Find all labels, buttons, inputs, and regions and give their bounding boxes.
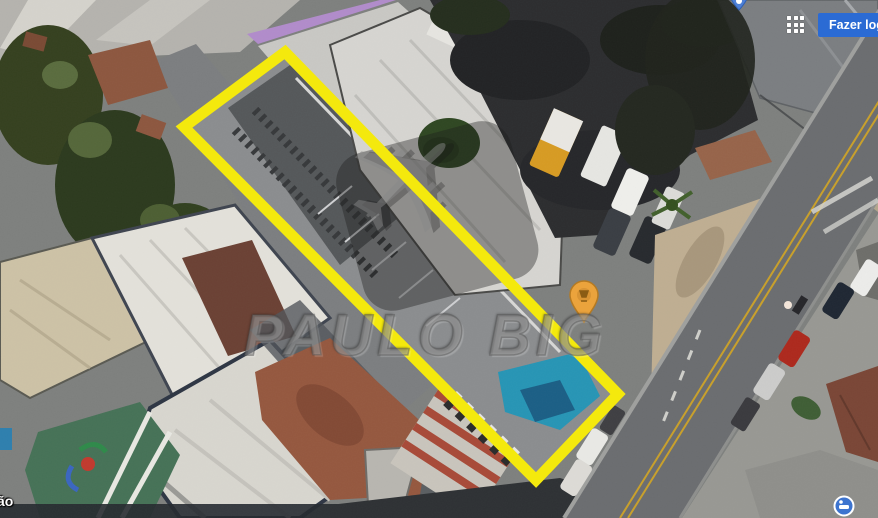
google-apps-grid-icon[interactable] <box>787 16 806 35</box>
poi-circle-blue-bottom[interactable] <box>835 497 854 516</box>
grid-dot <box>794 16 798 20</box>
grid-dot <box>794 23 798 27</box>
login-button[interactable]: Fazer login <box>818 13 878 37</box>
satellite-imagery[interactable]: ✈ ✈ <box>0 0 878 518</box>
street-name-label: ão <box>0 493 13 509</box>
grid-dot <box>800 16 804 20</box>
grid-dot <box>800 23 804 27</box>
grid-dot <box>787 16 791 20</box>
grid-dot <box>800 29 804 33</box>
map-viewport[interactable]: ✈ ✈ PAULO BIG ão Fazer login <box>0 0 878 518</box>
grid-dot <box>787 29 791 33</box>
grid-dot <box>794 29 798 33</box>
grid-dot <box>787 23 791 27</box>
